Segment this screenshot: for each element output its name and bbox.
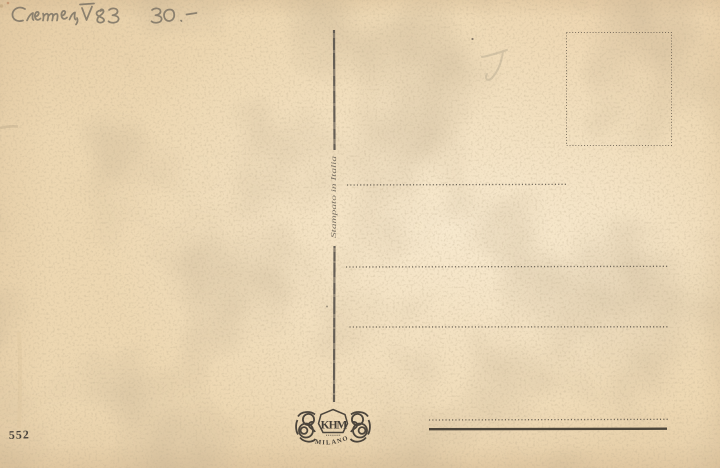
svg-text:Stampato in Italia: Stampato in Italia bbox=[331, 155, 338, 238]
svg-text:552: 552 bbox=[9, 427, 30, 442]
svg-text:KHM: KHM bbox=[321, 420, 348, 432]
